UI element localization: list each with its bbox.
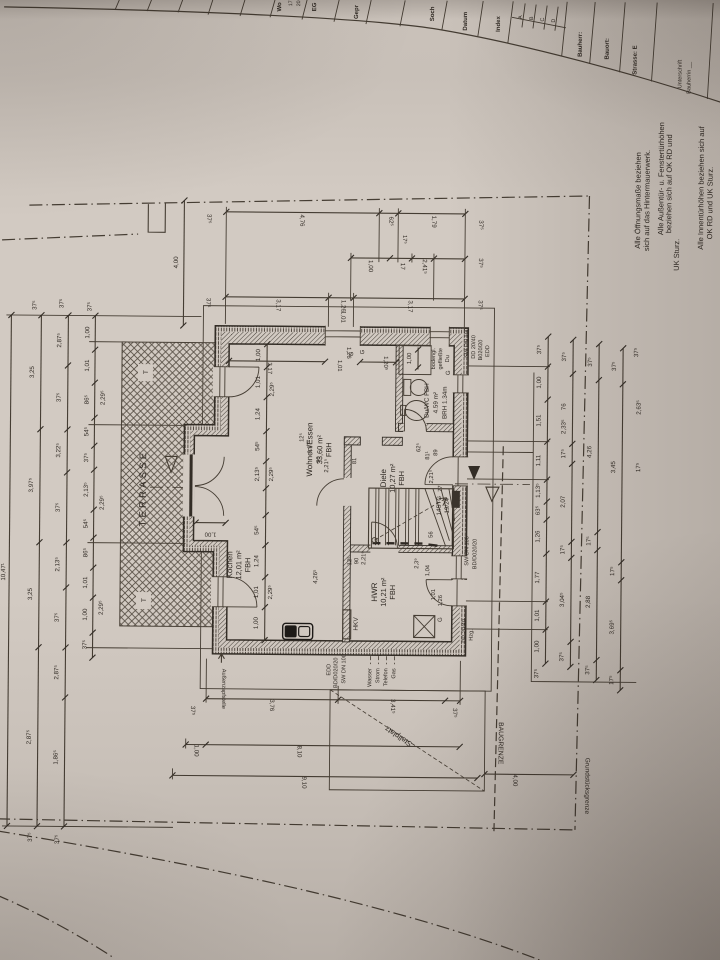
- svg-text:37⁵: 37⁵: [55, 502, 62, 512]
- svg-text:3,69⁵: 3,69⁵: [609, 619, 616, 634]
- svg-text:1,17⁵: 1,17⁵: [306, 439, 313, 453]
- svg-text:Strom: Strom: [375, 668, 381, 683]
- svg-text:2,13⁵: 2,13⁵: [254, 466, 261, 481]
- svg-text:1,01: 1,01: [82, 576, 89, 589]
- svg-text:37⁵: 37⁵: [587, 357, 594, 367]
- svg-text:FBH: FBH: [397, 471, 406, 486]
- svg-text:3,25: 3,25: [27, 588, 34, 601]
- svg-text:17⁵: 17⁵: [635, 462, 642, 472]
- svg-text:2,29⁵: 2,29⁵: [100, 390, 107, 405]
- svg-text:10,47¹: 10,47¹: [0, 563, 7, 581]
- svg-text:1,01: 1,01: [84, 359, 91, 372]
- svg-text:BAUGRENZE: BAUGRENZE: [497, 722, 504, 765]
- svg-text:81: 81: [352, 458, 358, 465]
- svg-text:37⁵: 37⁵: [633, 347, 640, 357]
- svg-text:2,88: 2,88: [585, 595, 592, 608]
- svg-text:3,97⁵: 3,97⁵: [28, 477, 35, 492]
- svg-text:3,45: 3,45: [610, 461, 617, 474]
- svg-text:BD/D020/20: BD/D020/20: [333, 658, 339, 689]
- svg-text:EG: EG: [312, 2, 318, 11]
- svg-text:G: G: [360, 349, 366, 354]
- svg-text:2,29⁵: 2,29⁵: [269, 382, 276, 397]
- svg-text:3,17: 3,17: [274, 299, 281, 312]
- svg-text:1,01: 1,01: [336, 360, 342, 372]
- svg-text:1,00: 1,00: [367, 260, 374, 273]
- svg-text:1,00: 1,00: [82, 608, 89, 621]
- svg-text:Kochen: Kochen: [225, 551, 234, 578]
- svg-text:37⁵: 37⁵: [83, 452, 90, 462]
- svg-text:Bauherr:: Bauherr:: [578, 32, 584, 57]
- svg-text:1,00: 1,00: [534, 640, 541, 653]
- svg-text:86⁵: 86⁵: [82, 547, 89, 557]
- svg-text:1,01: 1,01: [339, 311, 346, 324]
- svg-text:9,10: 9,10: [300, 776, 307, 789]
- svg-text:10,27 m²: 10,27 m²: [388, 463, 397, 493]
- svg-text:63⁵: 63⁵: [535, 505, 542, 515]
- svg-text:4,76: 4,76: [298, 214, 305, 227]
- svg-text:37⁵: 37⁵: [451, 708, 458, 718]
- svg-text:2,21⁵: 2,21⁵: [428, 469, 435, 483]
- svg-text:Hzg.: Hzg.: [469, 629, 475, 641]
- svg-text:SW DN 100: SW DN 100: [341, 654, 347, 684]
- svg-text:2,87⁵: 2,87⁵: [56, 333, 63, 348]
- svg-text:90: 90: [316, 456, 322, 463]
- svg-text:Strasse: E: Strasse: E: [633, 45, 639, 74]
- svg-text:sich auf das Hintermauerwerk.: sich auf das Hintermauerwerk.: [642, 150, 652, 251]
- svg-text:FBH: FBH: [324, 442, 333, 457]
- svg-text:1,13⁵: 1,13⁵: [535, 483, 542, 498]
- svg-text:G: G: [349, 351, 355, 356]
- svg-text:Du/WC FBH: Du/WC FBH: [424, 383, 431, 418]
- svg-text:beziehen sich auf OK RD und: beziehen sich auf OK RD und: [664, 134, 674, 233]
- svg-text:1,11: 1,11: [535, 454, 542, 466]
- svg-text:12,01 m²: 12,01 m²: [234, 550, 243, 580]
- svg-text:T: T: [141, 598, 148, 602]
- svg-text:37⁵: 37⁵: [27, 832, 34, 842]
- svg-text:1,00: 1,00: [84, 326, 91, 339]
- svg-text:FBH: FBH: [388, 585, 397, 600]
- svg-text:Datum: Datum: [463, 12, 469, 31]
- svg-text:17⁵: 17⁵: [608, 675, 615, 685]
- svg-text:17: 17: [288, 0, 294, 6]
- svg-text:Wo: Wo: [277, 2, 283, 12]
- svg-text:Diele: Diele: [379, 469, 388, 488]
- svg-text:2,29⁵: 2,29⁵: [267, 585, 274, 600]
- svg-text:37⁵: 37⁵: [56, 392, 63, 402]
- svg-text:Außenzapfstelle: Außenzapfstelle: [220, 669, 226, 709]
- svg-text:1,24: 1,24: [253, 554, 260, 567]
- svg-text:3,17: 3,17: [266, 362, 272, 374]
- svg-text:HKV: HKV: [353, 617, 360, 631]
- svg-text:Gas: Gas: [391, 668, 397, 679]
- svg-text:12⁵: 12⁵: [346, 556, 353, 566]
- svg-text:1,00: 1,00: [253, 616, 260, 629]
- svg-text:TERRASSE: TERRASSE: [138, 450, 150, 527]
- svg-text:1,20⁵: 1,20⁵: [382, 356, 389, 371]
- svg-text:1,26: 1,26: [438, 595, 444, 606]
- svg-text:37⁵: 37⁵: [31, 300, 38, 310]
- svg-text:SW DN 100: SW DN 100: [464, 536, 470, 566]
- svg-text:2,29⁵: 2,29⁵: [98, 600, 105, 615]
- svg-text:3,04⁵: 3,04⁵: [559, 592, 566, 607]
- svg-text:1,00: 1,00: [407, 352, 413, 364]
- svg-text:2,29⁵: 2,29⁵: [268, 467, 275, 482]
- svg-text:BRH 1.34m: BRH 1.34m: [442, 386, 449, 419]
- svg-text:37⁵: 37⁵: [86, 301, 93, 311]
- svg-text:1,51: 1,51: [535, 414, 542, 427]
- svg-text:SW DN 100: SW DN 100: [464, 328, 470, 358]
- svg-text:89: 89: [433, 449, 439, 456]
- svg-text:1,01: 1,01: [255, 376, 262, 389]
- svg-text:G: G: [446, 370, 452, 375]
- svg-text:3,76: 3,76: [268, 699, 275, 712]
- svg-text:54⁵: 54⁵: [254, 525, 261, 535]
- svg-text:EDD: EDD: [326, 664, 332, 676]
- svg-text:bodengl.: bodengl.: [431, 347, 437, 369]
- svg-text:1,00: 1,00: [536, 376, 543, 389]
- svg-text:4.59 m²: 4.59 m²: [433, 392, 440, 413]
- svg-text:1,24: 1,24: [255, 407, 262, 420]
- svg-text:54⁵: 54⁵: [83, 426, 90, 436]
- svg-text:54⁵: 54⁵: [254, 441, 261, 451]
- svg-text:37⁵: 37⁵: [584, 665, 591, 675]
- svg-text:Wasser: Wasser: [367, 668, 373, 687]
- svg-text:17⁵: 17⁵: [401, 235, 408, 245]
- svg-text:37⁵: 37⁵: [611, 361, 618, 371]
- svg-text:4,00: 4,00: [173, 256, 180, 269]
- svg-text:gefließte: gefließte: [438, 348, 444, 370]
- svg-text:17⁵: 17⁵: [609, 566, 616, 576]
- svg-text:3,41⁵: 3,41⁵: [389, 699, 396, 714]
- svg-text:19/24: 19/24: [444, 497, 451, 513]
- svg-text:37⁵: 37⁵: [205, 214, 212, 224]
- svg-text:Grundstücksgrenze: Grundstücksgrenze: [583, 758, 590, 815]
- svg-text:37⁵: 37⁵: [533, 668, 540, 678]
- svg-text:90: 90: [354, 558, 360, 565]
- svg-text:2,21⁵: 2,21⁵: [323, 458, 330, 472]
- svg-text:3,17: 3,17: [406, 300, 413, 313]
- svg-text:37⁵: 37⁵: [477, 220, 484, 230]
- svg-text:1,26: 1,26: [534, 530, 541, 543]
- svg-text:FBH: FBH: [243, 558, 252, 573]
- svg-text:2,13⁵: 2,13⁵: [83, 482, 90, 497]
- svg-text:2,07: 2,07: [560, 495, 567, 508]
- svg-text:12⁵: 12⁵: [298, 432, 305, 442]
- svg-text:37⁵: 37⁵: [477, 258, 484, 268]
- svg-text:Gepr: Gepr: [354, 4, 360, 19]
- svg-text:1,86⁵: 1,86⁵: [53, 750, 60, 765]
- svg-text:1,00: 1,00: [193, 745, 200, 758]
- svg-text:56: 56: [428, 531, 434, 538]
- svg-text:1,00: 1,00: [204, 531, 216, 537]
- svg-text:81¹: 81¹: [425, 451, 431, 459]
- svg-text:17⁵: 17⁵: [560, 449, 567, 459]
- svg-text:4,00: 4,00: [511, 774, 518, 787]
- svg-text:Unterschrift: Unterschrift: [677, 59, 683, 88]
- svg-text:37⁵: 37⁵: [82, 639, 89, 649]
- svg-text:Stellplatz: Stellplatz: [383, 724, 414, 749]
- svg-text:Telefon: Telefon: [383, 668, 389, 686]
- svg-text:86⁵: 86⁵: [84, 394, 91, 404]
- svg-text:1,00: 1,00: [255, 349, 262, 362]
- svg-text:1,01: 1,01: [534, 609, 541, 622]
- svg-text:77: 77: [438, 485, 444, 492]
- svg-text:Du: Du: [445, 355, 451, 362]
- svg-text:17⁵: 17⁵: [559, 545, 566, 555]
- svg-text:10,21 m²: 10,21 m²: [379, 577, 388, 607]
- svg-text:1,04: 1,04: [425, 564, 431, 576]
- svg-text:2,13⁵: 2,13⁵: [54, 557, 61, 572]
- svg-text:62⁵: 62⁵: [415, 442, 422, 452]
- svg-text:37⁵: 37⁵: [561, 352, 568, 362]
- svg-text:T: T: [143, 370, 150, 374]
- svg-text:DD 20/40: DD 20/40: [462, 619, 468, 643]
- svg-text:HWR: HWR: [370, 582, 379, 601]
- svg-text:BD/D020/20: BD/D020/20: [472, 539, 478, 570]
- svg-text:Soch: Soch: [430, 6, 436, 21]
- svg-text:1,77: 1,77: [534, 571, 541, 584]
- svg-text:2,33⁵: 2,33⁵: [560, 419, 567, 434]
- svg-text:37⁵: 37⁵: [54, 612, 61, 622]
- svg-text:37⁵: 37⁵: [189, 706, 196, 716]
- svg-text:1,01: 1,01: [253, 585, 260, 598]
- svg-text:4,26⁵: 4,26⁵: [312, 569, 319, 584]
- svg-text:1,79: 1,79: [430, 216, 437, 229]
- svg-text:37⁵: 37⁵: [58, 298, 65, 308]
- svg-text:3,25: 3,25: [29, 366, 36, 379]
- svg-text:17⁵: 17⁵: [585, 536, 592, 546]
- svg-text:2,87⁵: 2,87⁵: [53, 665, 60, 680]
- svg-text:1,01: 1,01: [431, 589, 437, 600]
- svg-text:2,21⁵: 2,21⁵: [360, 551, 367, 565]
- svg-text:3,22⁵: 3,22⁵: [55, 443, 62, 458]
- svg-text:37⁵: 37⁵: [536, 344, 543, 354]
- svg-text:20: 20: [296, 0, 302, 6]
- svg-text:EDD: EDD: [485, 345, 491, 357]
- svg-text:DD 20/40: DD 20/40: [471, 335, 477, 359]
- svg-text:14STG: 14STG: [436, 496, 443, 516]
- svg-text:UK Sturz.: UK Sturz.: [672, 239, 681, 271]
- svg-text:2,41⁵: 2,41⁵: [421, 259, 428, 274]
- svg-text:54⁵: 54⁵: [83, 518, 90, 528]
- svg-text:Bauort:: Bauort:: [605, 38, 611, 59]
- svg-text:37⁵: 37⁵: [204, 298, 211, 308]
- svg-text:37⁵: 37⁵: [558, 652, 565, 662]
- svg-text:8,10: 8,10: [296, 745, 303, 758]
- svg-text:62⁵: 62⁵: [387, 217, 394, 227]
- svg-text:4,26: 4,26: [586, 445, 593, 458]
- svg-text:2,63⁵: 2,63⁵: [636, 400, 643, 415]
- svg-text:76: 76: [561, 403, 568, 411]
- svg-text:37⁵: 37⁵: [54, 834, 61, 844]
- svg-text:Index: Index: [496, 16, 502, 32]
- svg-text:17: 17: [399, 263, 406, 271]
- svg-text:37⁵: 37⁵: [476, 300, 483, 310]
- svg-text:2,3⁹: 2,3⁹: [413, 558, 420, 569]
- svg-text:OK RD und UK Sturz.: OK RD und UK Sturz.: [705, 167, 715, 240]
- svg-text:2,87⁵: 2,87⁵: [26, 729, 33, 744]
- svg-text:2,29⁵: 2,29⁵: [99, 495, 106, 510]
- svg-text:G: G: [438, 617, 444, 622]
- svg-text:B020/20: B020/20: [478, 340, 484, 361]
- svg-text:Bauherrin __: Bauherrin __: [686, 61, 692, 94]
